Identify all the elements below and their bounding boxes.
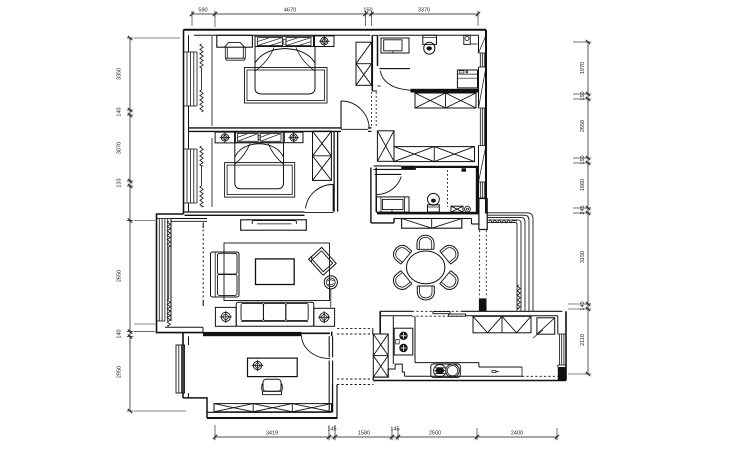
- svg-text:133: 133: [117, 178, 123, 187]
- svg-text:2110: 2110: [580, 334, 586, 346]
- svg-text:1580: 1580: [358, 431, 370, 437]
- svg-text:150: 150: [363, 8, 372, 14]
- svg-text:590: 590: [198, 8, 207, 14]
- svg-text:2400: 2400: [511, 431, 523, 437]
- svg-text:2650: 2650: [117, 270, 123, 282]
- svg-text:140: 140: [117, 107, 123, 116]
- svg-text:140: 140: [117, 329, 123, 338]
- svg-text:3350: 3350: [117, 68, 123, 80]
- svg-text:2500: 2500: [429, 431, 441, 437]
- svg-text:2950: 2950: [117, 366, 123, 378]
- svg-text:150: 150: [580, 91, 586, 100]
- svg-text:4670: 4670: [284, 8, 296, 14]
- svg-text:2650: 2650: [580, 120, 586, 132]
- svg-text:145: 145: [390, 427, 399, 433]
- svg-text:145: 145: [327, 427, 336, 433]
- svg-text:245: 245: [580, 205, 586, 214]
- svg-text:3150: 3150: [580, 251, 586, 263]
- svg-text:3070: 3070: [117, 142, 123, 154]
- svg-text:150: 150: [580, 155, 586, 164]
- svg-text:1970: 1970: [580, 62, 586, 74]
- svg-text:3370: 3370: [418, 8, 430, 14]
- svg-text:140: 140: [580, 301, 586, 310]
- svg-text:1660: 1660: [580, 179, 586, 191]
- svg-text:3419: 3419: [266, 431, 278, 437]
